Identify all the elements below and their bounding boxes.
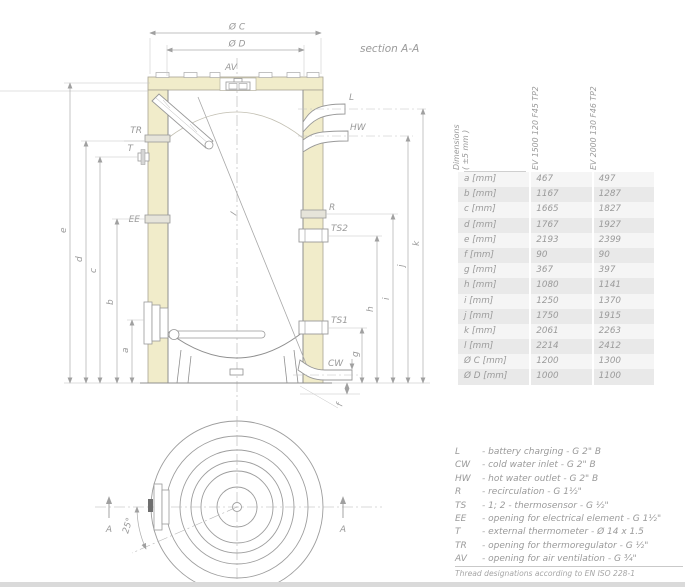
section-title: section A-A — [360, 43, 419, 55]
legend-item: AV- opening for air ventilation - G ¾" — [455, 553, 680, 566]
dim-label-od: Ø D — [228, 39, 246, 50]
angle-dimension: 25° — [121, 507, 146, 549]
angled-centerline — [132, 507, 237, 553]
table-row: e [mm]21932399 — [458, 233, 654, 248]
heater-flange — [144, 302, 265, 344]
table-row: i [mm]12501370 — [458, 294, 654, 309]
l-label: L — [349, 93, 354, 103]
dimensions-table: Dimensions ( ±5 mm ) EV 1500 120 F45 TP2… — [458, 108, 654, 385]
legend-item: T- external thermometer - Ø 14 x 1.5 — [455, 526, 680, 539]
page-bottom-bar — [0, 582, 685, 587]
dim-label-oc: Ø C — [228, 22, 246, 33]
ts1-boss — [299, 321, 328, 334]
table-header-dimensions: Dimensions ( ±5 mm ) — [452, 124, 470, 170]
f-dimension: f — [300, 383, 360, 408]
table-row: b [mm]11671287 — [458, 187, 654, 202]
table-row: f [mm]9090 — [458, 248, 654, 263]
table-header-col1: EV 1500 120 F45 TP2 — [531, 86, 540, 170]
ts2-label: TS2 — [331, 224, 348, 234]
r-label: R — [329, 203, 335, 213]
table-row: Ø C [mm]12001300 — [458, 354, 654, 369]
t-label: T — [128, 144, 135, 154]
leg — [294, 350, 298, 383]
av-label: AV — [224, 63, 238, 73]
ts2-boss — [299, 229, 328, 242]
right-dimensions: g h i j k — [326, 109, 423, 383]
drain — [230, 369, 243, 375]
hw-label: HW — [350, 123, 367, 133]
legend-item: TS- 1; 2 - thermosensor - G ½" — [455, 500, 680, 513]
angle-label: 25° — [121, 517, 135, 535]
drawing-sheet: l TR T EE L — [0, 0, 685, 587]
dim-label-g: g — [351, 351, 361, 357]
table-row: g [mm]367397 — [458, 263, 654, 278]
ts1-label: TS1 — [331, 316, 348, 326]
table-row: k [mm]20612263 — [458, 324, 654, 339]
legend-item: R- recirculation - G 1½" — [455, 486, 680, 499]
tr-label: TR — [130, 126, 142, 136]
legend-item: CW- cold water inlet - G 2" B — [455, 459, 680, 472]
table-header-col2: EV 2000 130 F46 TP2 — [589, 86, 598, 170]
table-row: l [mm]22142412 — [458, 339, 654, 354]
header-tolerance-label: ( ±5 mm ) — [461, 124, 470, 170]
dim-label-a: a — [121, 347, 131, 353]
dim-label-e: e — [59, 227, 69, 233]
leg — [188, 356, 191, 383]
legend-item: EE- opening for electrical element - G 1… — [455, 513, 680, 526]
header-underline — [464, 171, 526, 172]
section-markers: A A — [105, 497, 346, 535]
leg — [284, 356, 287, 383]
dim-label-j: j — [397, 264, 407, 269]
legend-item: TR- opening for thermoregulator - G ½" — [455, 540, 680, 553]
table-row: j [mm]17501915 — [458, 309, 654, 324]
legend-item: HW- hot water outlet - G 2" B — [455, 473, 680, 486]
ee-stub — [145, 215, 170, 223]
table-row: a [mm]467497 — [458, 172, 654, 187]
table-row: h [mm]10801141 — [458, 278, 654, 293]
dim-label-f: f — [335, 400, 346, 407]
table-row: Ø D [mm]10001100 — [458, 369, 654, 384]
side-flange — [148, 484, 169, 530]
left-connections: TR T EE — [124, 126, 265, 344]
table-row: c [mm]16651827 — [458, 202, 654, 217]
cw-label: CW — [328, 359, 344, 369]
dim-label-b: b — [106, 299, 116, 305]
thread-legend: L- battery charging - G 2" B CW- cold wa… — [455, 446, 680, 567]
dim-label-k: k — [412, 240, 422, 246]
r-stub — [301, 210, 326, 218]
leg — [177, 350, 181, 383]
dim-label-h: h — [366, 306, 376, 312]
legend-item: L- battery charging - G 2" B — [455, 446, 680, 459]
section-marker-a-left: A — [105, 525, 112, 535]
diameter-dimensions: Ø C Ø D AV — [150, 22, 321, 77]
dim-label-l: l — [230, 211, 240, 218]
dim-label-d: d — [75, 256, 85, 262]
heating-element-rod — [168, 331, 265, 338]
section-view: l TR T EE L — [0, 22, 430, 415]
table-body: a [mm]467497 b [mm]11671287 c [mm]166518… — [458, 172, 654, 385]
tr-stub — [145, 135, 170, 142]
table-header: Dimensions ( ±5 mm ) EV 1500 120 F45 TP2… — [458, 108, 654, 172]
inner-vessel — [168, 90, 303, 383]
dim-label-c: c — [89, 268, 99, 273]
table-row: d [mm]17671927 — [458, 218, 654, 233]
av-fitting — [220, 78, 256, 91]
thermosensor-tube: l — [152, 94, 307, 366]
section-marker-a-right: A — [339, 525, 346, 535]
top-view: 25° A A — [95, 416, 382, 587]
ee-label: EE — [129, 215, 141, 225]
dim-label-i: i — [382, 297, 392, 300]
footnote: Thread designations according to EN ISO … — [455, 566, 683, 578]
header-dimensions-label: Dimensions — [452, 124, 461, 170]
